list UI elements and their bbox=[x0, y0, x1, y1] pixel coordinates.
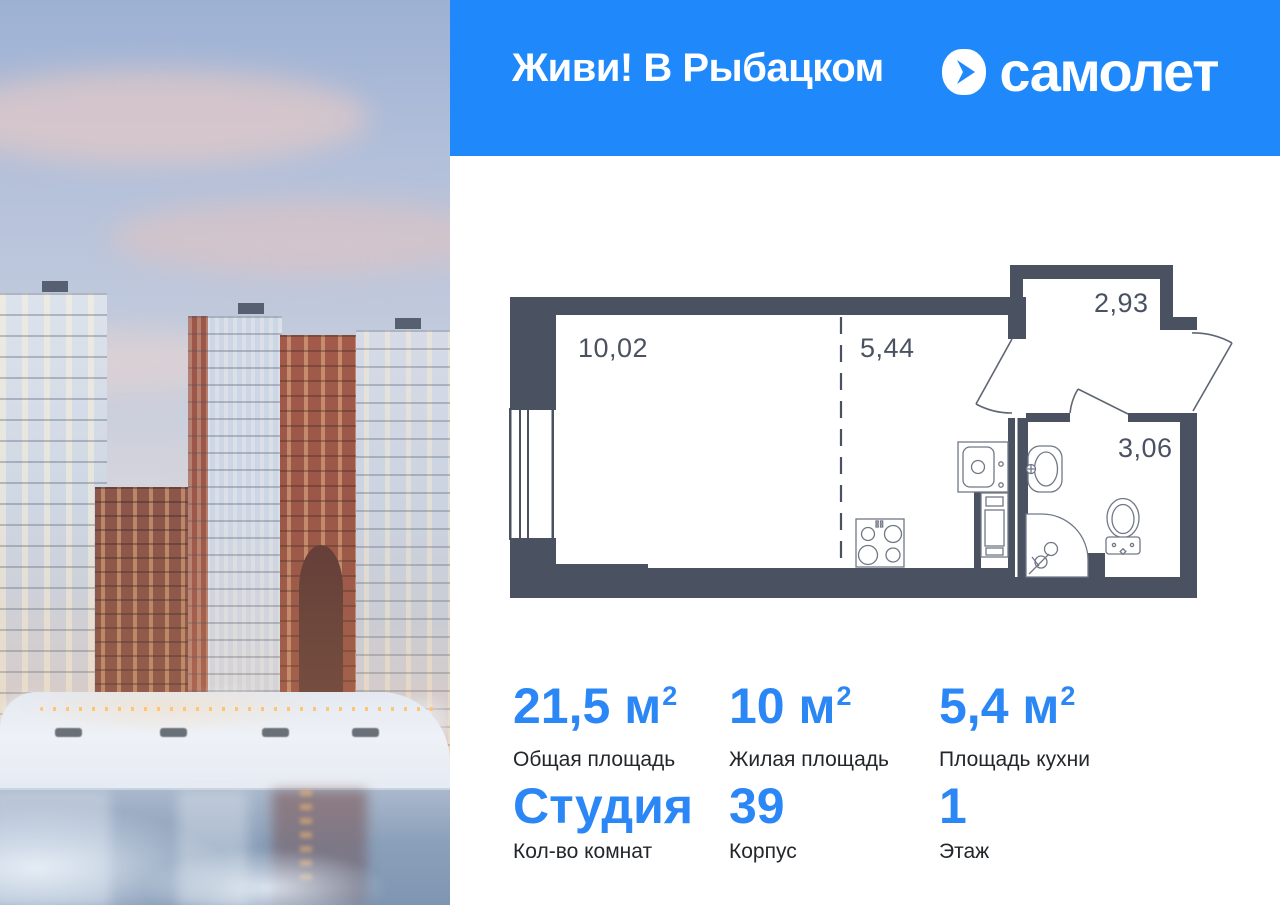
entry-door-arc bbox=[1192, 333, 1232, 343]
stat-label: Этаж bbox=[939, 840, 1149, 864]
sup-2: 2 bbox=[662, 671, 677, 721]
street-lights bbox=[40, 707, 440, 711]
toilet bbox=[1106, 499, 1140, 555]
listing-card: Живи! В Рыбацком самолет bbox=[0, 0, 1280, 905]
sup-2: 2 bbox=[1060, 671, 1075, 721]
stat-value: 10 м2 bbox=[729, 681, 939, 739]
hall-door-leaf bbox=[976, 339, 1012, 404]
stat-building: 39 Корпус bbox=[729, 781, 939, 864]
brand-name: самолет bbox=[999, 44, 1218, 100]
parked-car bbox=[352, 728, 379, 737]
bathroom-door-leaf bbox=[1078, 389, 1128, 414]
parked-car bbox=[55, 728, 82, 737]
stat-living-area: 10 м2 Жилая площадь bbox=[729, 681, 939, 772]
stat-value: 39 bbox=[729, 781, 939, 831]
hall-door-arc bbox=[976, 404, 1012, 413]
stat-total-area: 21,5 м2 Общая площадь bbox=[513, 681, 723, 772]
balcony-area-label: 2,93 bbox=[1094, 288, 1149, 318]
bathroom-area-label: 3,06 bbox=[1118, 433, 1173, 463]
stat-label: Площадь кухни bbox=[939, 748, 1149, 772]
project-title: Живи! В Рыбацком bbox=[512, 46, 884, 91]
bathroom-door-arc bbox=[1070, 389, 1078, 413]
brand-logo: самолет bbox=[942, 44, 1218, 100]
building-photo bbox=[0, 0, 450, 905]
stat-label: Корпус bbox=[729, 840, 939, 864]
parked-car bbox=[160, 728, 187, 737]
kitchen-sink bbox=[958, 442, 1008, 492]
bathroom-sink bbox=[1027, 446, 1063, 492]
stat-floor: 1 Этаж bbox=[939, 781, 1149, 864]
stat-value: 1 bbox=[939, 781, 1149, 831]
kitchen-column bbox=[981, 493, 1008, 557]
living-area-label: 10,02 bbox=[578, 333, 648, 363]
bathroom-fixtures bbox=[1026, 446, 1140, 577]
stat-value: Студия bbox=[513, 781, 723, 831]
ice-patch bbox=[140, 848, 390, 905]
door-swings bbox=[976, 333, 1232, 414]
floor-plan: 10,02 5,44 2,93 3,06 bbox=[497, 256, 1237, 601]
kitchen-area-label: 5,44 bbox=[860, 333, 915, 363]
sup-2: 2 bbox=[837, 671, 852, 721]
stat-kitchen-area: 5,4 м2 Площадь кухни bbox=[939, 681, 1149, 772]
stat-value: 21,5 м2 bbox=[513, 681, 723, 739]
samolet-arrow-icon bbox=[942, 49, 986, 95]
parked-car bbox=[262, 728, 289, 737]
stat-label: Общая площадь bbox=[513, 748, 723, 772]
kitchen-fixtures bbox=[856, 442, 1008, 567]
stat-label: Жилая площадь bbox=[729, 748, 939, 772]
stat-value: 5,4 м2 bbox=[939, 681, 1149, 739]
stat-label: Кол-во комнат bbox=[513, 840, 723, 864]
stove bbox=[856, 519, 904, 567]
shower bbox=[1026, 514, 1088, 577]
info-panel: Живи! В Рыбацком самолет bbox=[450, 0, 1280, 905]
entry-door-leaf bbox=[1193, 343, 1232, 411]
stat-rooms: Студия Кол-во комнат bbox=[513, 781, 723, 864]
header: Живи! В Рыбацком самолет bbox=[450, 0, 1280, 156]
wall-seam bbox=[1015, 418, 1018, 577]
